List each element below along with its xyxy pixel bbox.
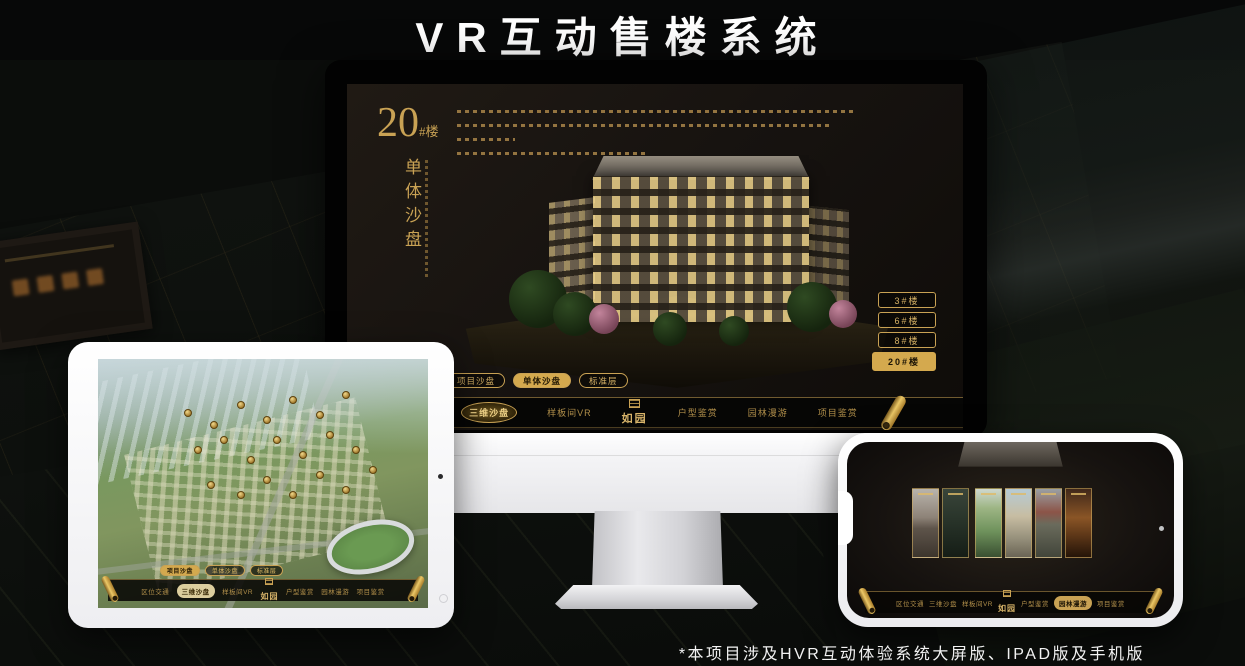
nav-item-3d-sandbox[interactable]: 三维沙盘 (177, 584, 215, 598)
phone-nav: 区位交通 三维沙盘 样板间VR 如园 户型鉴赏 园林漫游 项目鉴赏 (865, 591, 1156, 613)
tab-single-sandbox[interactable]: 单体沙盘 (513, 373, 571, 388)
scroll-icon[interactable] (879, 393, 908, 430)
brand-logo[interactable]: 如园 (622, 399, 648, 427)
floor-button-8[interactable]: 8#楼 (878, 332, 936, 348)
monitor-stand-neck (592, 511, 723, 589)
ceiling-beam (958, 442, 1063, 467)
tablet-view-tabs: 项目沙盘 单体沙盘 标准层 (160, 565, 418, 576)
nav-item-3d-sandbox[interactable]: 三维沙盘 (929, 598, 957, 608)
nav-item-project-gallery[interactable]: 项目鉴赏 (1097, 598, 1125, 608)
tab-project-sandbox[interactable]: 项目沙盘 (447, 373, 505, 388)
tablet-device: 项目沙盘 单体沙盘 标准层 区位交通 三维沙盘 样板间VR 如园 户型鉴赏 园林… (68, 342, 454, 628)
nav-item-3d-sandbox[interactable]: 三维沙盘 (461, 402, 517, 423)
phone-device: 区位交通 三维沙盘 样板间VR 如园 户型鉴赏 园林漫游 项目鉴赏 (838, 433, 1183, 627)
tree (719, 316, 749, 346)
building-3d-render (457, 142, 897, 392)
floor-headline: 20#楼 (377, 102, 439, 144)
nav-item-location[interactable]: 区位交通 (896, 598, 924, 608)
phone-screen: 区位交通 三维沙盘 样板间VR 如园 户型鉴赏 园林漫游 项目鉴赏 (847, 442, 1174, 618)
tab-standard-floor[interactable]: 标准层 (579, 373, 628, 388)
floor-button-3[interactable]: 3#楼 (878, 292, 936, 308)
floor-selector: 3#楼 6#楼 8#楼 20#楼 (872, 292, 936, 371)
nav-item-showroom-vr[interactable]: 样板间VR (222, 586, 253, 596)
tab-standard-floor[interactable]: 标准层 (250, 565, 284, 576)
tab-single-sandbox[interactable]: 单体沙盘 (205, 565, 245, 576)
nav-item-floorplans[interactable]: 户型鉴赏 (1021, 598, 1049, 608)
brand-logo[interactable]: 如园 (998, 590, 1016, 616)
nav-item-floorplans[interactable]: 户型鉴赏 (286, 586, 314, 596)
tablet-screen: 项目沙盘 单体沙盘 标准层 区位交通 三维沙盘 样板间VR 如园 户型鉴赏 园林… (98, 359, 428, 608)
seal-icon (1003, 590, 1011, 597)
nav-item-floorplans[interactable]: 户型鉴赏 (678, 406, 718, 419)
blossom-tree (589, 304, 619, 334)
floor-number: 20 (377, 100, 419, 146)
scroll-icon-left[interactable] (857, 587, 876, 616)
nav-item-garden-roam[interactable]: 园林漫游 (1054, 596, 1092, 610)
section-title-vertical: 单体沙盘 (399, 158, 424, 254)
gallery-panel-courtyard[interactable] (942, 488, 969, 558)
nav-item-showroom-vr[interactable]: 样板间VR (962, 598, 993, 608)
phone-nav-bar: 区位交通 三维沙盘 样板间VR 如园 户型鉴赏 园林漫游 项目鉴赏 (865, 591, 1156, 613)
nav-item-showroom-vr[interactable]: 样板间VR (547, 406, 592, 419)
brand-logo[interactable]: 如园 (260, 578, 278, 604)
nav-item-garden-roam[interactable]: 园林漫游 (748, 406, 788, 419)
nav-item-garden-roam[interactable]: 园林漫游 (321, 586, 349, 596)
gallery-panel-building[interactable] (1005, 488, 1032, 558)
tree (653, 312, 687, 346)
floor-button-20[interactable]: 20#楼 (872, 352, 936, 371)
background-brand-plaque (0, 222, 153, 351)
blossom-tree (829, 300, 857, 328)
monitor-stand-foot (555, 585, 758, 609)
scroll-icon-right[interactable] (1144, 587, 1163, 616)
footnote: *本项目涉及HVR互动体验系统大屏版、IPAD版及手机版 (679, 640, 1145, 664)
nav-item-project-gallery[interactable]: 项目鉴赏 (818, 406, 858, 419)
vr-sales-system-poster: { "page": { "title": "VR互动售楼系统", "footno… (0, 0, 1245, 666)
gallery-panel-garden[interactable] (975, 488, 1002, 558)
tablet-camera (438, 474, 443, 479)
seal-icon (265, 578, 273, 585)
page-title: VR互动售楼系统 (0, 4, 1245, 65)
section-title-english-decoration (425, 160, 428, 280)
gallery-panel-entrance[interactable] (1035, 488, 1062, 558)
tablet-nav-bar: 区位交通 三维沙盘 样板间VR 如园 户型鉴赏 园林漫游 项目鉴赏 (108, 579, 418, 601)
gallery-panel-interior[interactable] (912, 488, 939, 558)
view-tabs: 项目沙盘 单体沙盘 标准层 (447, 373, 628, 388)
tablet-nav: 项目沙盘 单体沙盘 标准层 区位交通 三维沙盘 样板间VR 如园 户型鉴赏 园林… (108, 565, 418, 601)
phone-front-camera (1159, 526, 1164, 531)
seal-icon (629, 399, 640, 408)
tablet-home-button[interactable] (439, 594, 448, 603)
tab-project-sandbox[interactable]: 项目沙盘 (160, 565, 200, 576)
nav-item-project-gallery[interactable]: 项目鉴赏 (357, 586, 385, 596)
building-facade (593, 176, 809, 322)
gallery-panel-cabinet[interactable] (1065, 488, 1092, 558)
floor-suffix: #楼 (419, 124, 439, 139)
phone-notch (838, 491, 853, 545)
nav-item-location[interactable]: 区位交通 (141, 586, 169, 596)
floor-button-6[interactable]: 6#楼 (878, 312, 936, 328)
